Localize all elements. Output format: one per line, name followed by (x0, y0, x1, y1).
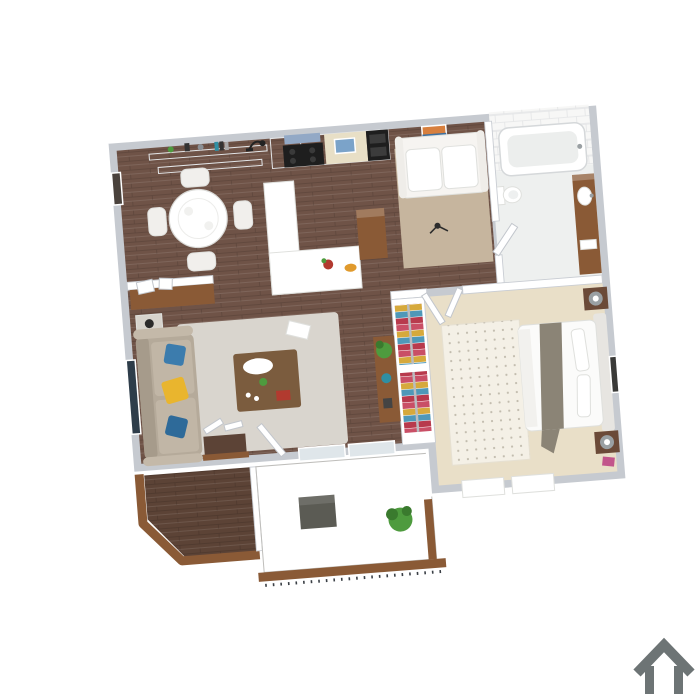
room-den (393, 122, 495, 269)
range-stove (283, 143, 325, 168)
red-box (276, 390, 291, 401)
logo-leg (645, 666, 654, 694)
shelf-book (219, 141, 224, 150)
logo-leg (674, 666, 683, 694)
pillow-blue (163, 343, 186, 366)
bedroom-rug-pattern (441, 320, 530, 466)
bedroom-window (511, 473, 554, 493)
shelf-book (214, 142, 219, 151)
entry-porch (139, 463, 263, 564)
pink-tray (602, 457, 615, 467)
shelf-book (224, 142, 229, 150)
loveseat (394, 130, 489, 199)
loveseat-cushion (441, 145, 478, 190)
house-logo-icon (637, 645, 691, 694)
patio-rail-bottom (258, 558, 446, 582)
towel (580, 239, 597, 249)
nightstand-top (583, 287, 609, 311)
loveseat-cushion (405, 147, 442, 192)
pillow (577, 375, 590, 417)
bedroom-window (462, 477, 505, 497)
shelf-vase (184, 143, 190, 151)
oven-door (370, 147, 387, 157)
coffee-table (233, 349, 301, 412)
dining-wall-picture (111, 172, 122, 205)
patio (250, 452, 447, 585)
floor-plan-rendering (0, 0, 700, 700)
leaning-frame (159, 278, 172, 289)
patio-plant (385, 506, 413, 533)
console-item (383, 398, 393, 409)
built-in-oven (366, 129, 390, 161)
oven-door (369, 134, 386, 144)
bathtub-basin (507, 131, 579, 168)
kitchen-wall-art (334, 138, 355, 154)
